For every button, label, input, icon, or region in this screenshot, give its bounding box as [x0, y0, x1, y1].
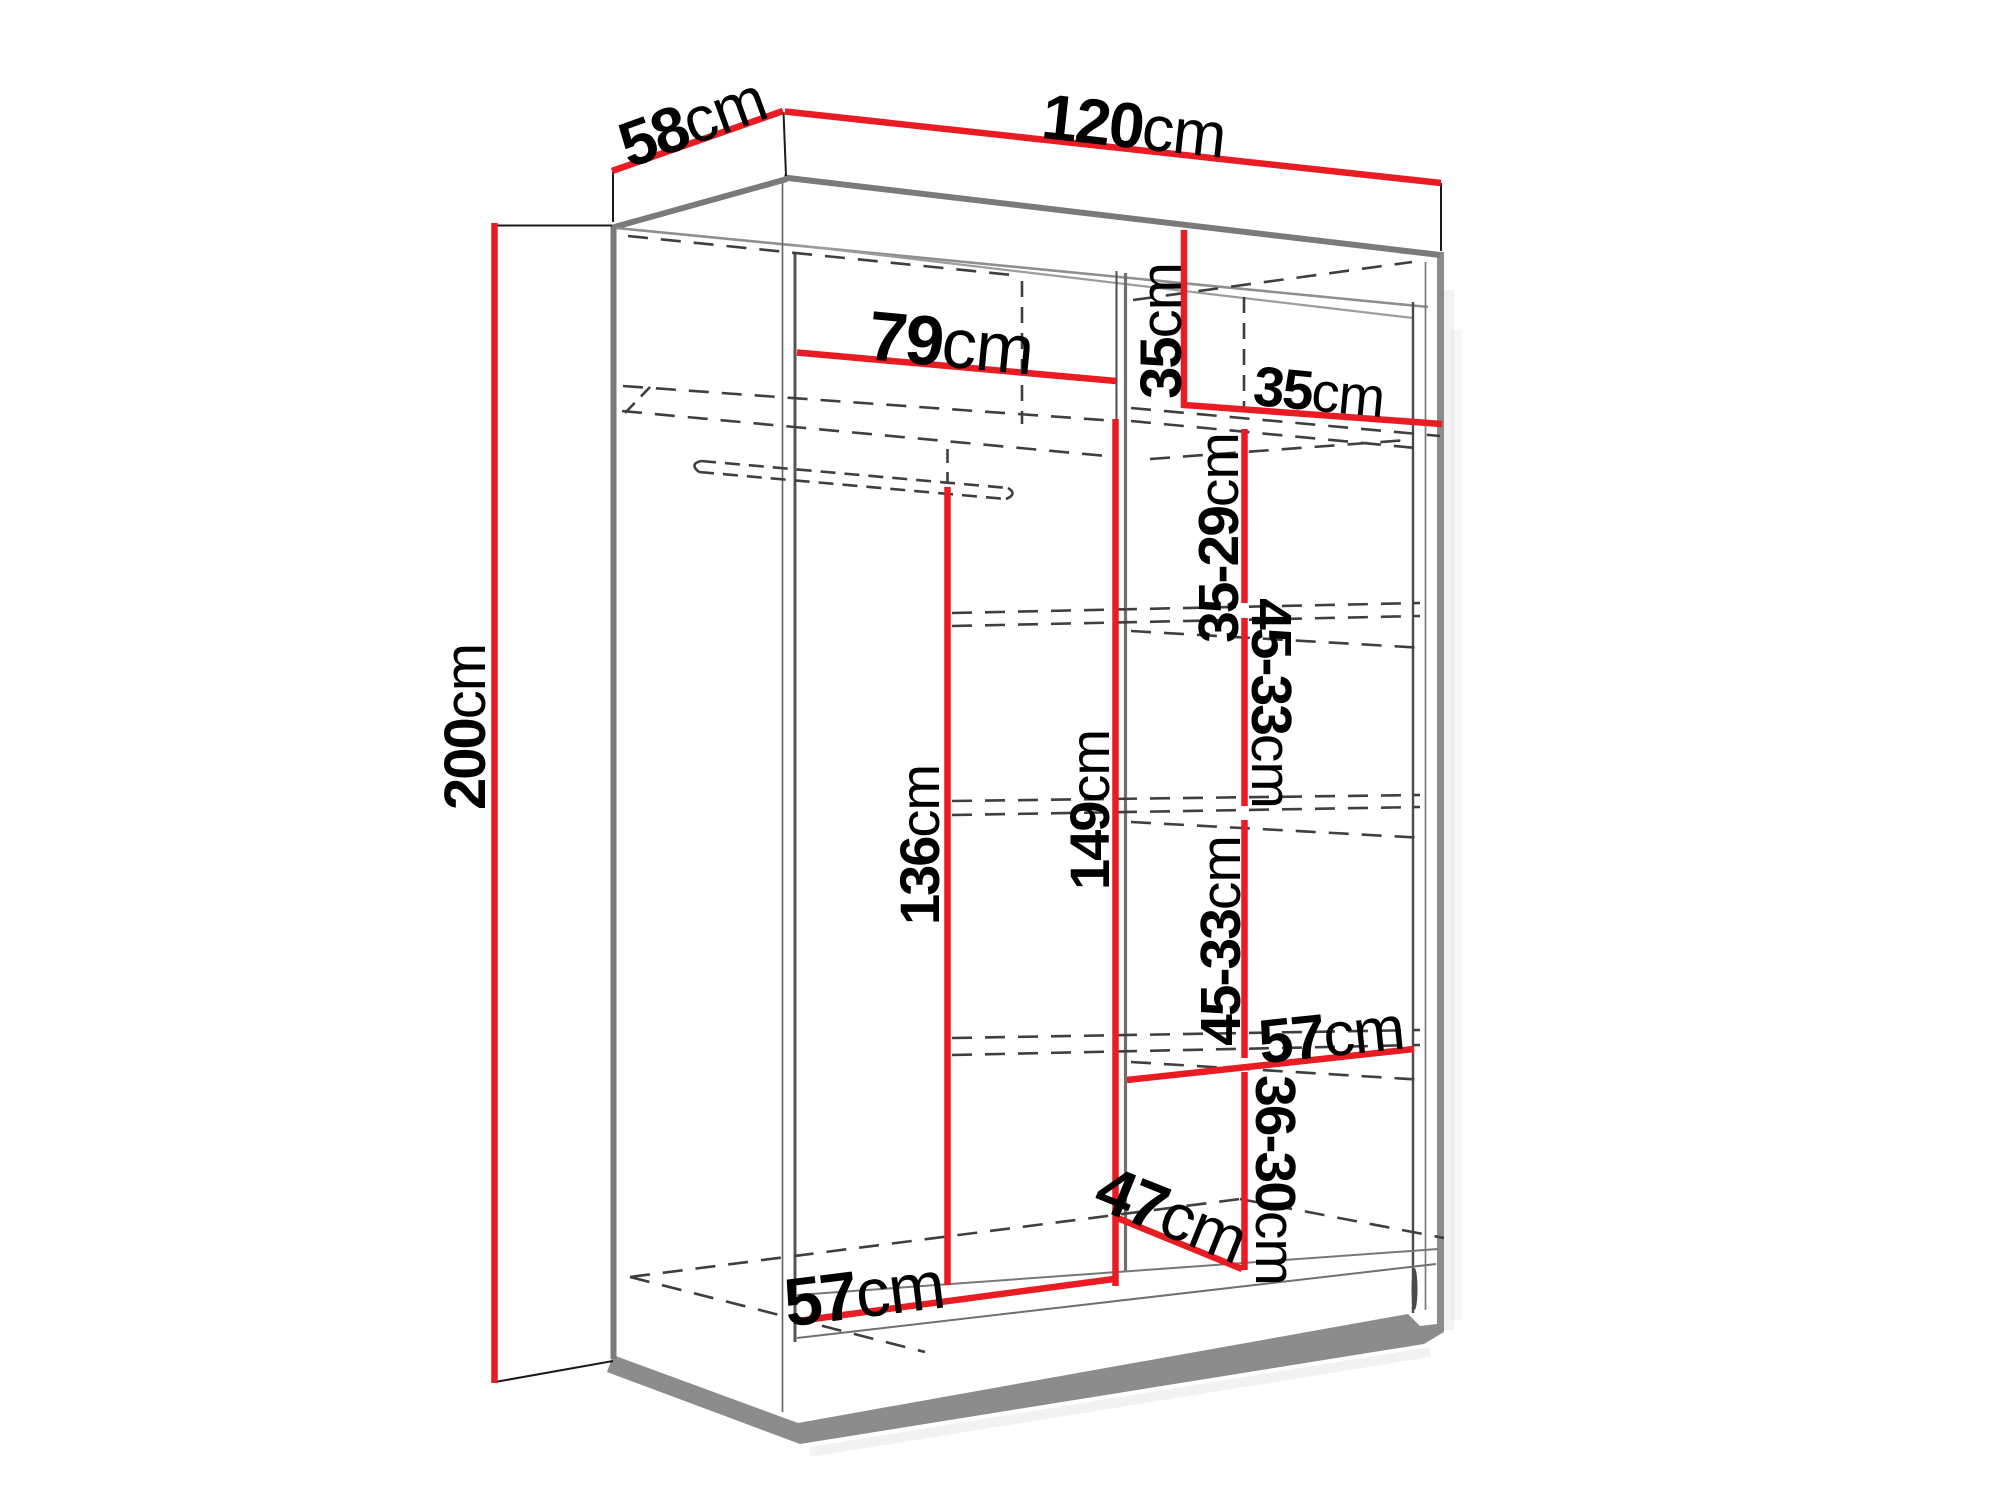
svg-text:79cm: 79cm: [865, 296, 1037, 389]
svg-text:136cm: 136cm: [888, 765, 951, 925]
svg-text:45-33cm: 45-33cm: [1239, 598, 1303, 808]
svg-text:35cm: 35cm: [1251, 354, 1387, 429]
svg-text:35cm: 35cm: [1129, 263, 1194, 399]
svg-text:149cm: 149cm: [1058, 730, 1121, 890]
svg-text:45-33cm: 45-33cm: [1189, 836, 1253, 1046]
svg-text:36-30cm: 36-30cm: [1243, 1075, 1307, 1285]
svg-text:200cm: 200cm: [433, 644, 498, 810]
